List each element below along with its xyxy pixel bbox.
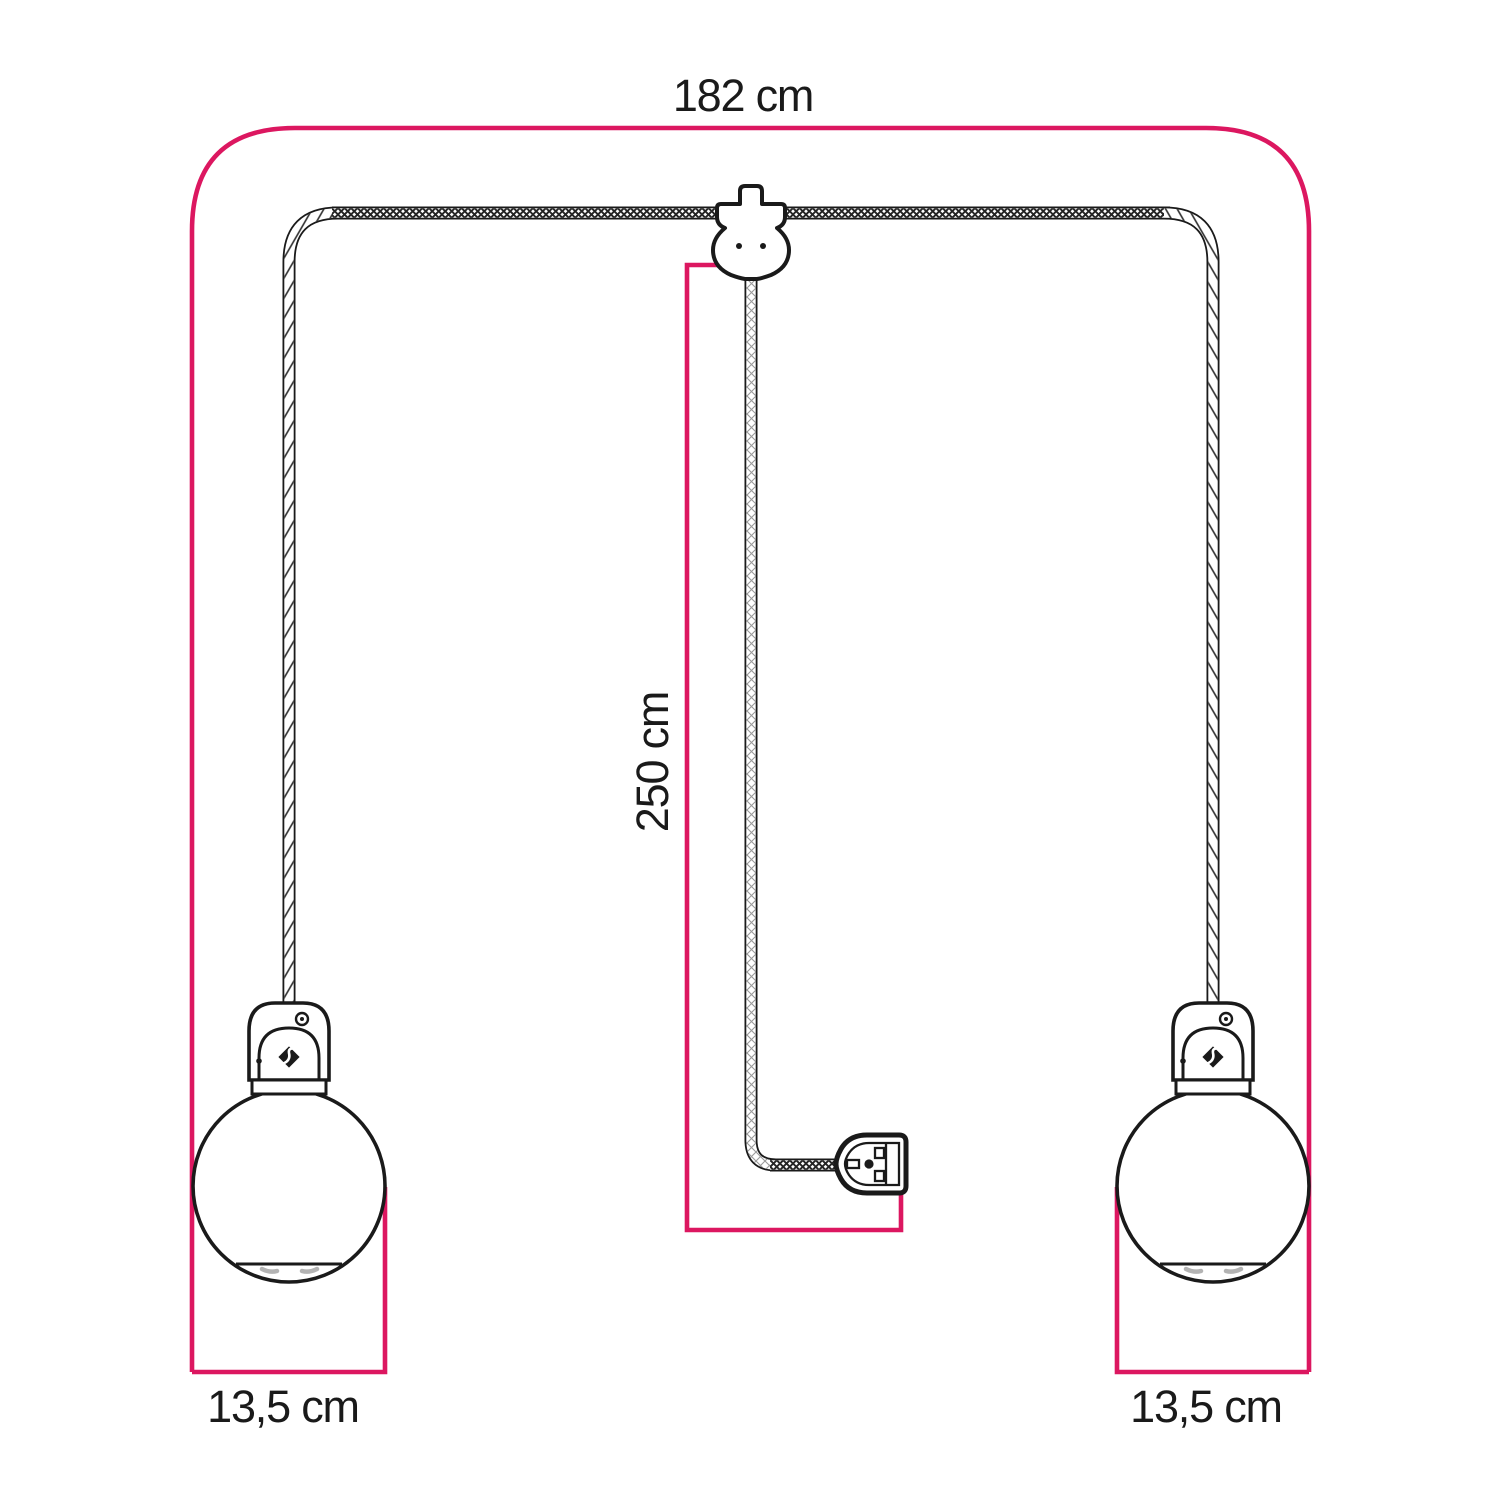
right-globe-diameter-label: 13,5 cm — [1130, 1381, 1282, 1432]
left-globe-diameter-label: 13,5 cm — [207, 1381, 359, 1432]
ceiling-cable-hook-icon — [713, 186, 789, 279]
plug-pin-left — [847, 1160, 859, 1168]
hook-hole — [736, 243, 742, 249]
braided-textile-cable — [289, 213, 1213, 1165]
drop-length-label: 250 cm — [627, 692, 678, 832]
cable-left-drop — [289, 213, 338, 1004]
total-width-label: 182 cm — [673, 70, 813, 121]
drop-dimension-bracket — [687, 265, 901, 1230]
uk-plug-icon — [836, 1135, 906, 1193]
plug-pin-top — [875, 1148, 884, 1158]
plug-center-dot — [864, 1159, 873, 1168]
cable-right-drop — [1164, 213, 1213, 1004]
plug-pin-bottom — [875, 1171, 884, 1181]
diagram-stage: 182 cm 250 cm 13,5 cm 13,5 cm — [0, 0, 1500, 1500]
left-globe-lamp — [193, 1003, 385, 1282]
pendant-lamp-dimension-diagram: 182 cm 250 cm 13,5 cm 13,5 cm — [0, 0, 1500, 1500]
cable-middle-drop — [751, 256, 776, 1165]
right-globe-lamp — [1117, 1003, 1309, 1282]
hook-hole — [760, 243, 766, 249]
